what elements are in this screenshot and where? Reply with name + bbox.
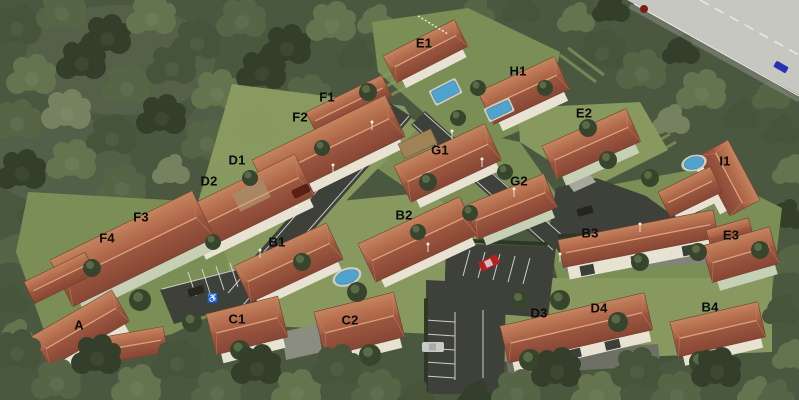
building-label-b1: B1 [268,236,285,249]
building-label-f1: F1 [319,91,335,104]
building-label-d3: D3 [530,307,547,320]
building-label-i1: I1 [719,155,730,168]
site-plan-render: ♿ [0,0,799,400]
building-label-d4: D4 [590,302,607,315]
building-label-b4: B4 [701,301,718,314]
building-label-g2: G2 [510,175,528,188]
building-label-f3: F3 [133,211,149,224]
building-label-e2: E2 [576,107,592,120]
building-label-f4: F4 [99,232,115,245]
accessible-parking-icon: ♿ [207,292,218,303]
building-label-d2: D2 [200,175,217,188]
building-label-f2: F2 [292,111,308,124]
building-label-c2: C2 [341,314,358,327]
car-white [422,342,444,352]
building-label-g1: G1 [431,144,449,157]
scene-canvas: ♿ [0,0,799,400]
building-label-c1: C1 [228,313,245,326]
building-label-e1: E1 [416,37,432,50]
red-bush [640,5,648,13]
building-label-d1: D1 [228,154,245,167]
building-label-a: A [74,319,84,332]
building-label-h1: H1 [509,65,526,78]
building-label-e3: E3 [723,229,739,242]
building-label-b3: B3 [581,227,598,240]
building-label-b2: B2 [395,209,412,222]
